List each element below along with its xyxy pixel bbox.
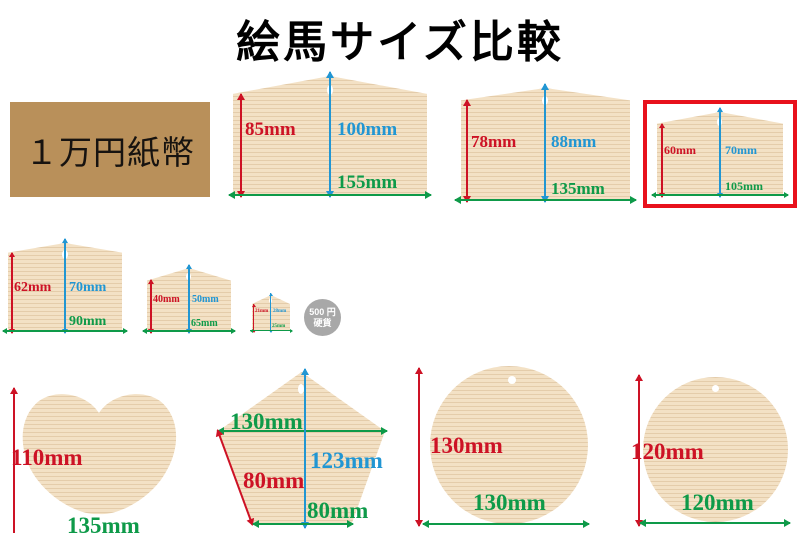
side-height-label: 21mm — [255, 309, 268, 314]
coin-label-line2: 硬貨 — [313, 318, 331, 328]
side-height-arrow — [253, 304, 254, 332]
heart-plaque: 110mm 135mm — [11, 388, 183, 530]
side-height-arrow — [11, 253, 13, 333]
height-label: 130mm — [430, 434, 503, 457]
side-height-arrow — [466, 100, 468, 202]
total-height-arrow — [188, 265, 190, 333]
circle-plaque-120: 120mm 120mm — [643, 377, 788, 522]
ema-plaque-65x50: 40mm 50mm 65mm — [147, 268, 231, 331]
width-label: 90mm — [69, 315, 106, 329]
pentagon-plaque: 130mm 123mm 80mm 80mm — [218, 372, 385, 524]
side-height-arrow — [150, 280, 152, 333]
coin-reference: 500 円 硬貨 — [304, 299, 341, 336]
width-label: 155mm — [337, 173, 397, 192]
side-height-label: 62mm — [14, 281, 51, 295]
ema-plaque-mini: 21mm 28mm 25mm — [252, 295, 290, 331]
total-height-arrow — [270, 293, 271, 332]
side-height-label: 40mm — [153, 295, 180, 305]
total-height-label: 70mm — [725, 144, 757, 156]
width-arrow — [250, 330, 292, 331]
width-label: 25mm — [272, 324, 285, 329]
width-label: 130mm — [473, 491, 546, 514]
total-height-arrow — [544, 84, 546, 202]
width-label: 105mm — [725, 180, 763, 192]
total-height-label: 28mm — [273, 309, 286, 314]
ema-plaque-90x70: 62mm 70mm 90mm — [8, 243, 122, 331]
width-arrow — [640, 522, 790, 524]
total-height-label: 50mm — [192, 295, 219, 305]
width-arrow — [229, 194, 431, 196]
side-height-label: 60mm — [664, 144, 696, 156]
side-height-label: 85mm — [245, 120, 296, 139]
width-label: 120mm — [681, 491, 754, 514]
width-arrow — [455, 199, 636, 201]
ema-plaque-155x100: 85mm 100mm 155mm — [233, 76, 427, 195]
bottom-width-arrow — [253, 523, 353, 525]
hang-hole — [712, 385, 719, 392]
total-height-label: 88mm — [551, 133, 596, 150]
bottom-width-label: 80mm — [307, 499, 368, 522]
width-label: 135mm — [551, 180, 605, 197]
side-height-label: 78mm — [471, 133, 516, 150]
total-height-label: 100mm — [337, 120, 397, 139]
width-label: 65mm — [191, 319, 218, 329]
width-arrow — [143, 330, 235, 332]
top-width-label: 130mm — [230, 410, 303, 433]
height-label: 123mm — [310, 449, 383, 472]
total-height-arrow — [329, 72, 331, 197]
side-height-arrow — [661, 124, 663, 197]
side-height-arrow — [240, 94, 242, 197]
size-comparison-diagram: 絵馬サイズ比較 １万円紙幣 85mm 100mm 155mm 78mm 88mm… — [0, 0, 800, 533]
width-arrow — [423, 523, 589, 525]
ema-plaque-135x88: 78mm 88mm 135mm — [461, 88, 630, 200]
hang-hole — [97, 402, 104, 409]
height-label: 120mm — [631, 440, 704, 463]
hang-hole — [508, 376, 516, 384]
height-arrow — [418, 368, 420, 526]
ema-plaque-105x70: 60mm 70mm 105mm — [657, 112, 783, 195]
circle-plaque-130: 130mm 130mm — [430, 366, 588, 524]
page-title: 絵馬サイズ比較 — [0, 6, 800, 70]
total-height-label: 70mm — [69, 281, 106, 295]
side-label: 80mm — [243, 469, 304, 492]
height-arrow — [304, 369, 306, 528]
width-arrow — [652, 194, 788, 196]
banknote-label: １万円紙幣 — [25, 126, 195, 174]
width-label: 135mm — [67, 514, 140, 533]
coin-label-line1: 500 円 — [309, 307, 336, 317]
width-arrow — [3, 330, 127, 332]
height-label: 110mm — [11, 446, 83, 469]
banknote-reference: １万円紙幣 — [10, 102, 210, 197]
total-height-arrow — [719, 108, 721, 197]
total-height-arrow — [64, 239, 66, 333]
